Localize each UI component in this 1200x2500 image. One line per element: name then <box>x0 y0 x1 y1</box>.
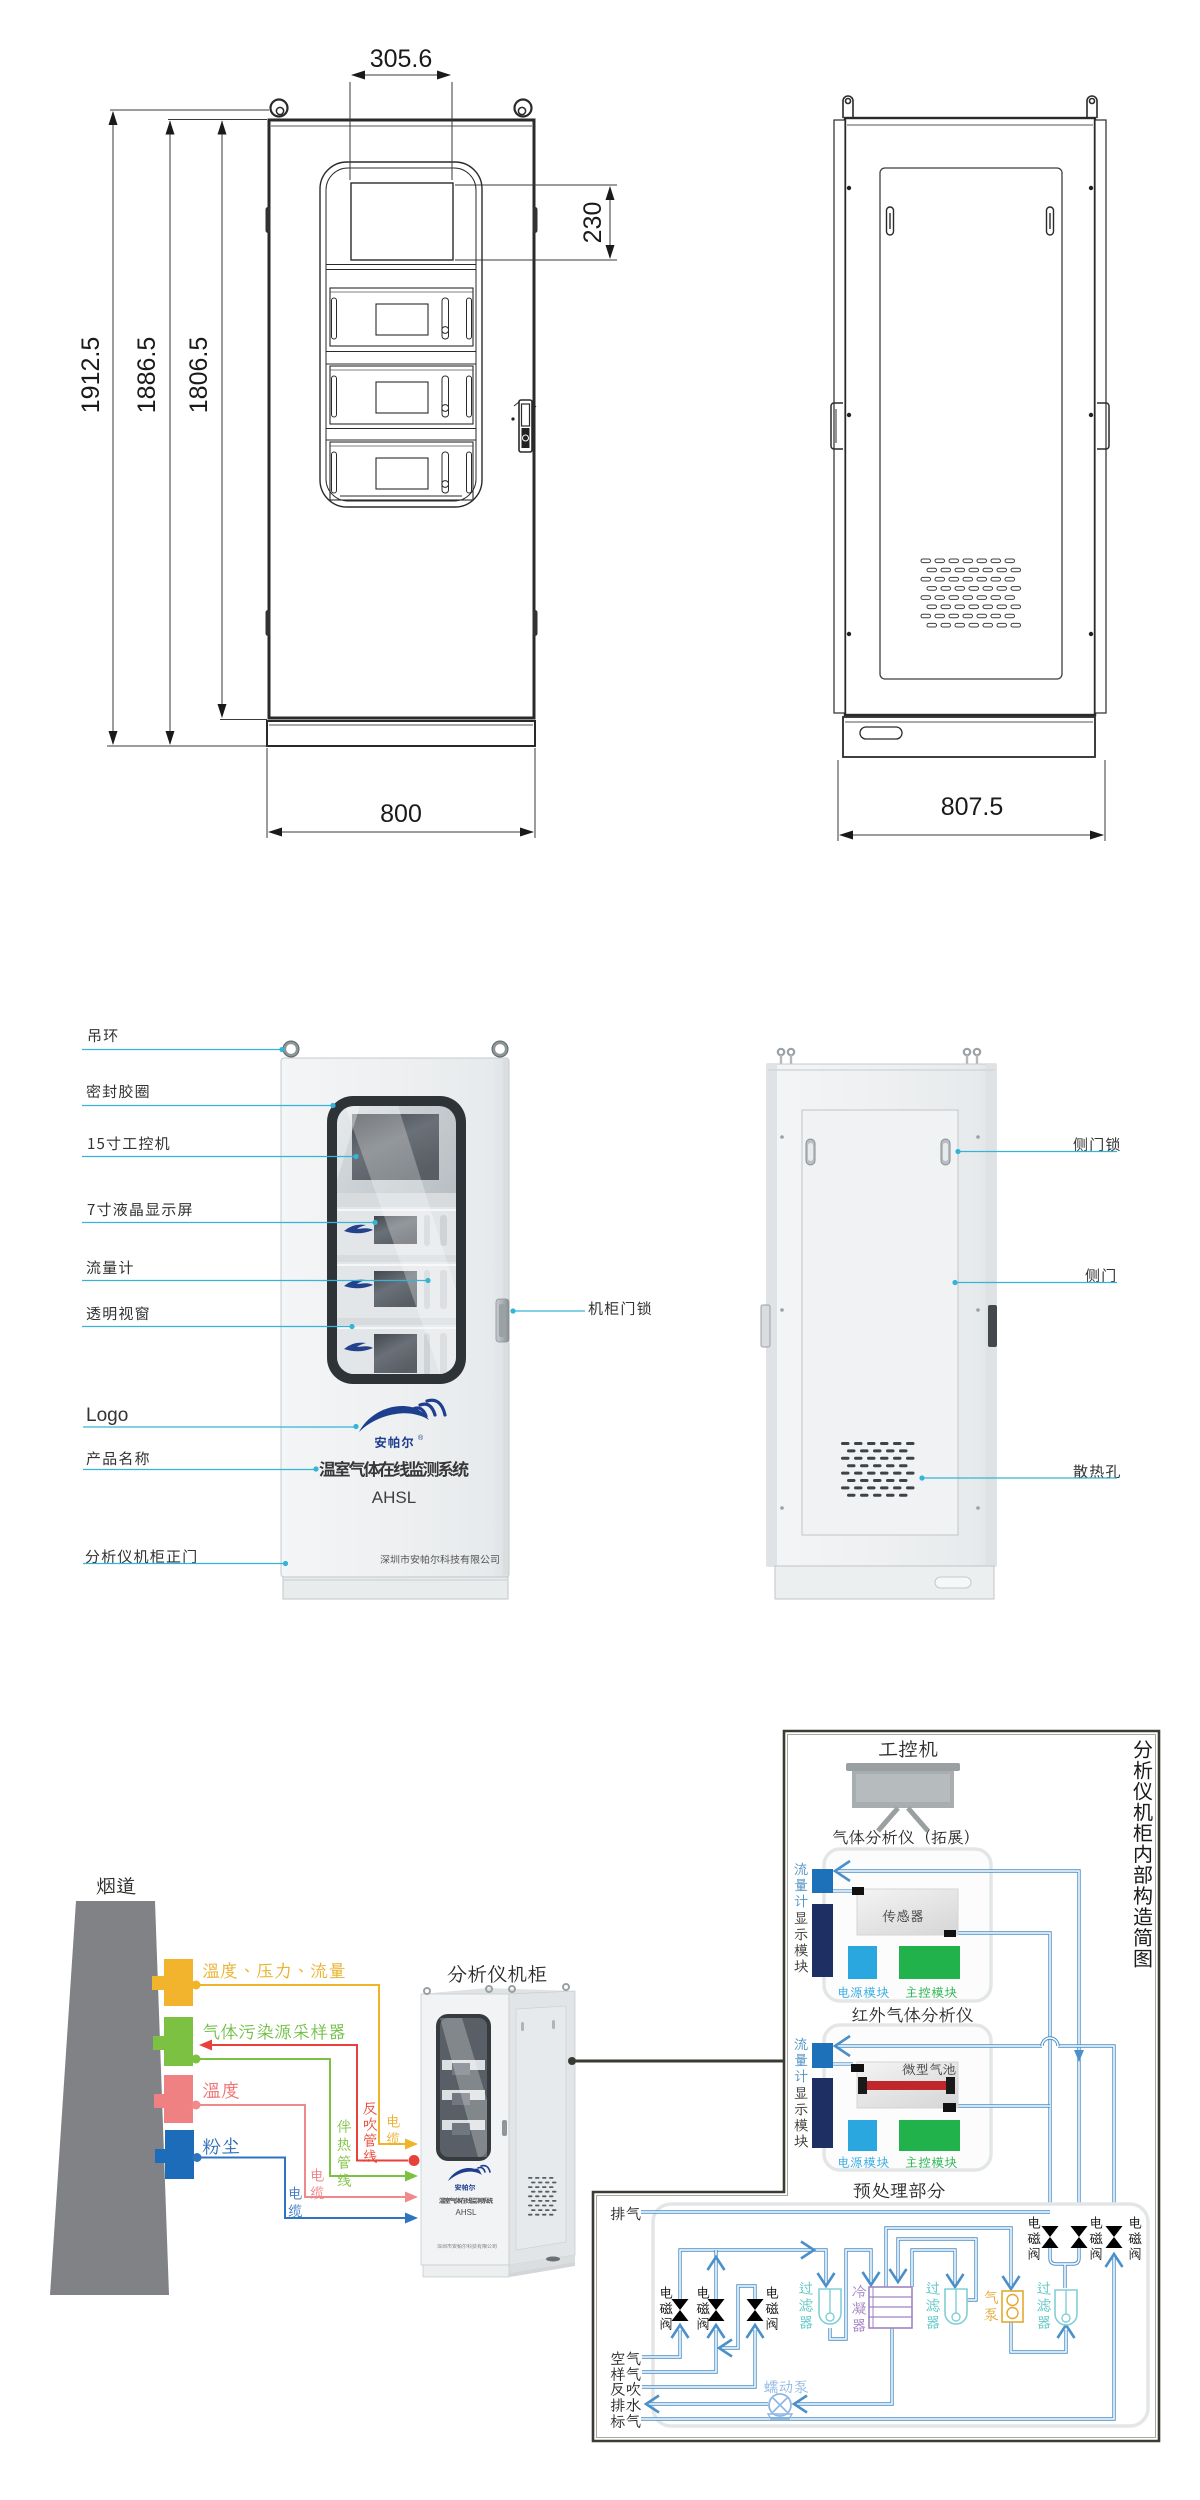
svg-text:807.5: 807.5 <box>941 793 1004 821</box>
svg-text:230: 230 <box>579 202 607 244</box>
svg-text:800: 800 <box>380 800 422 828</box>
svg-text:1912.5: 1912.5 <box>77 337 105 413</box>
svg-text:305.6: 305.6 <box>370 45 433 73</box>
svg-text:1886.5: 1886.5 <box>133 337 161 413</box>
svg-text:AHSL: AHSL <box>372 1488 416 1507</box>
svg-text:AHSL: AHSL <box>456 2208 477 2217</box>
svg-text:1806.5: 1806.5 <box>185 337 213 413</box>
svg-text:®: ® <box>418 1434 424 1442</box>
svg-text:Logo: Logo <box>86 1405 128 1426</box>
